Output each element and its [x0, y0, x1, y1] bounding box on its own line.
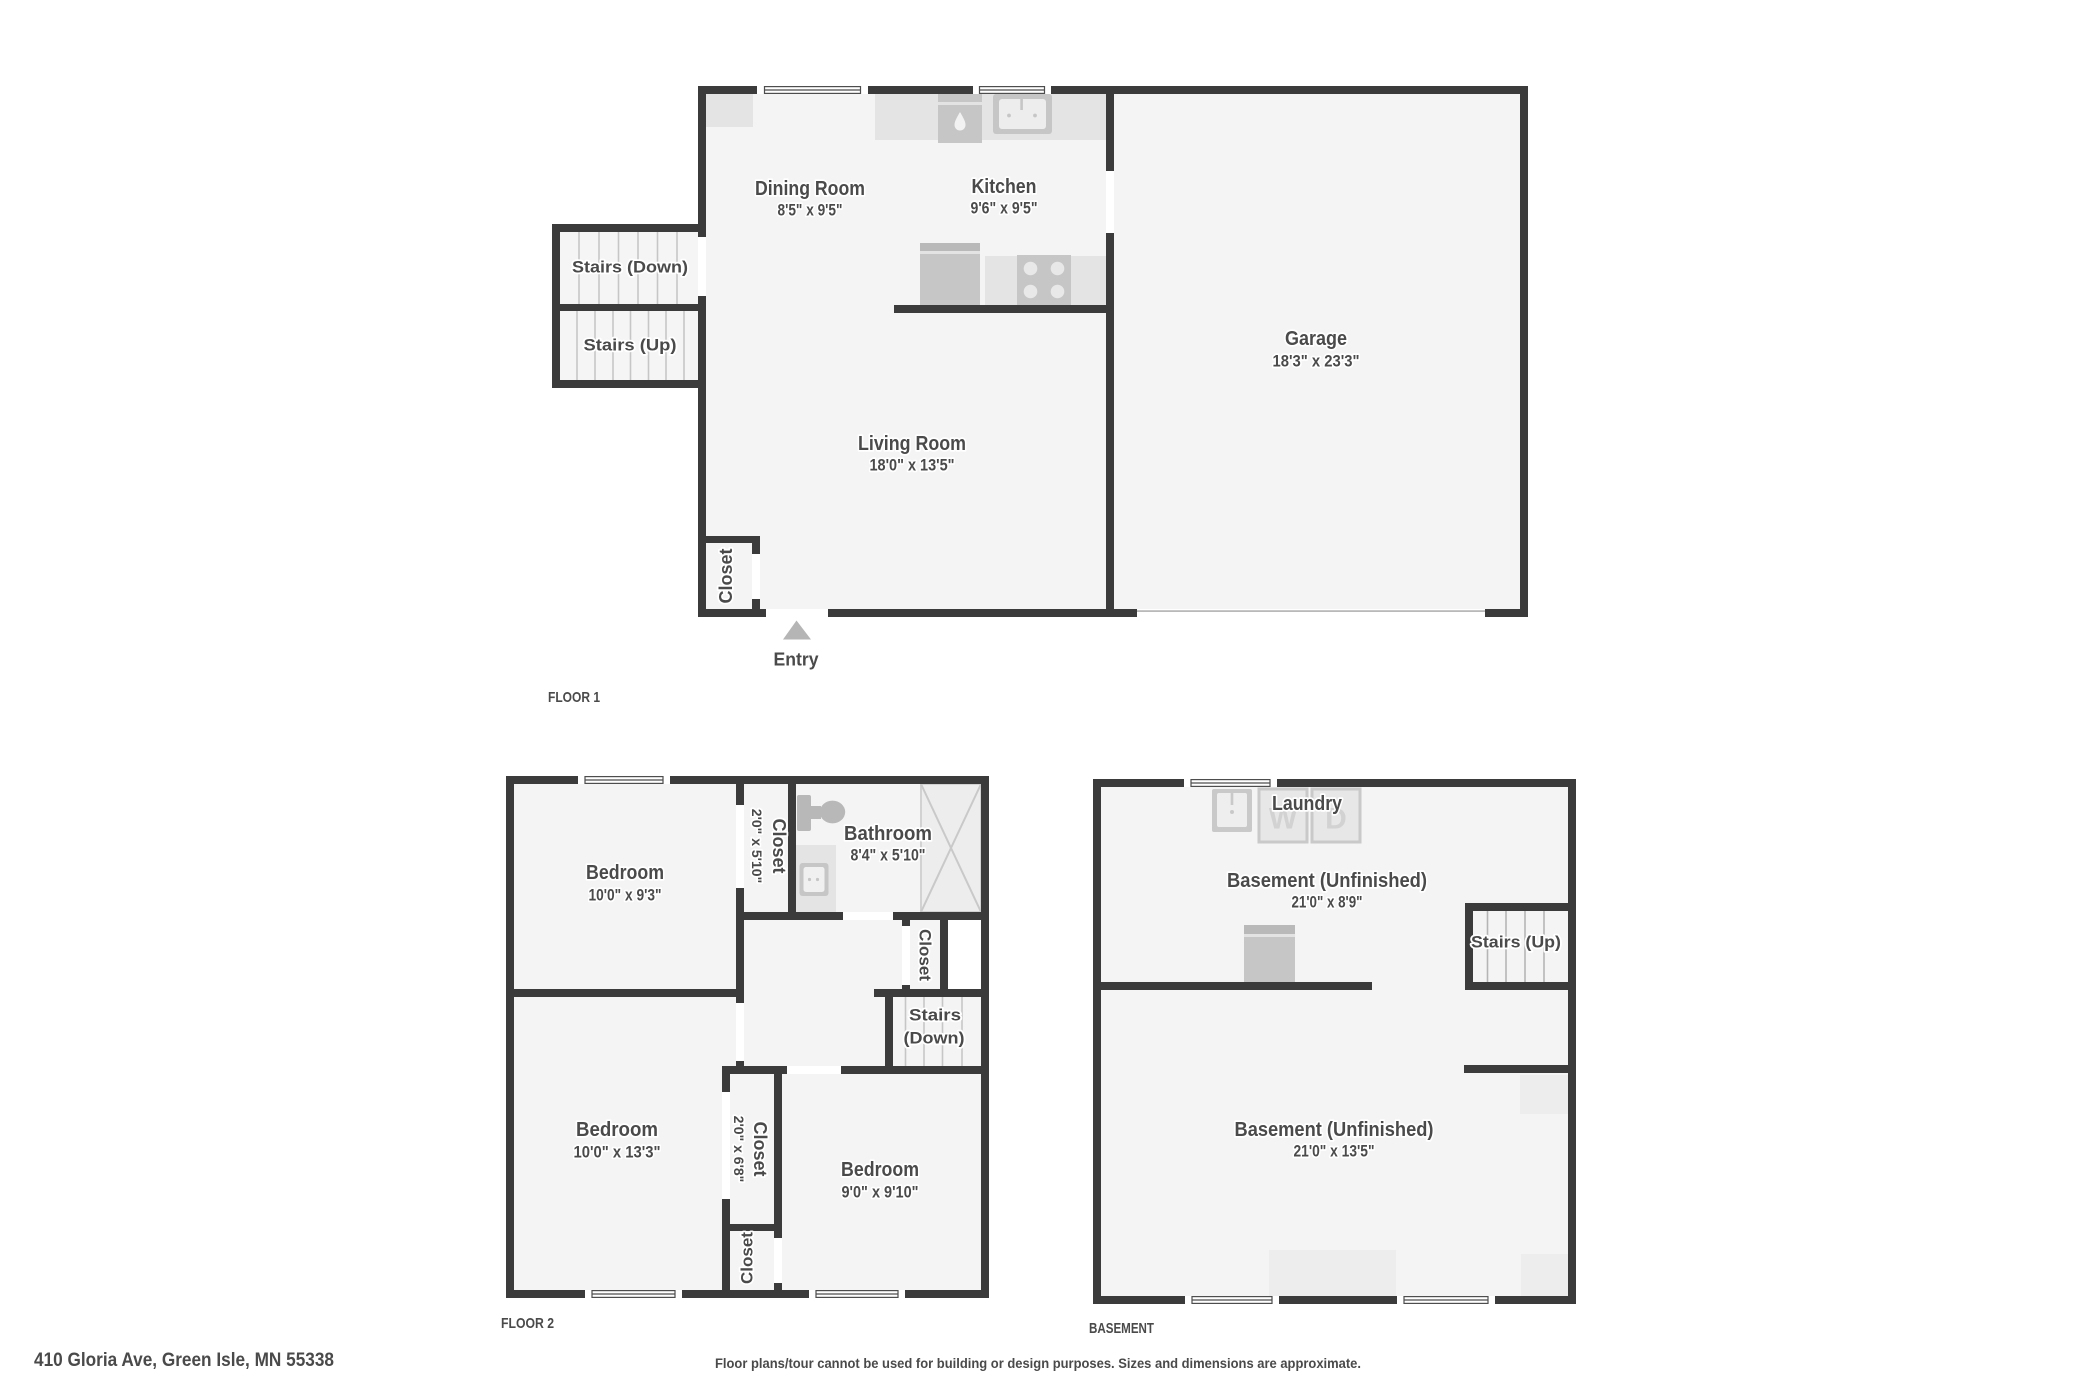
svg-text:Entry: Entry	[774, 649, 820, 670]
svg-text:9'0" x 9'10": 9'0" x 9'10"	[842, 1183, 919, 1202]
svg-text:2'0" x 5'10": 2'0" x 5'10"	[749, 809, 765, 883]
svg-text:FLOOR 1: FLOOR 1	[548, 689, 600, 706]
svg-text:Bedroom: Bedroom	[576, 1119, 658, 1141]
svg-text:Stairs (Up): Stairs (Up)	[584, 336, 677, 355]
svg-text:Basement (Unfinished): Basement (Unfinished)	[1235, 1119, 1434, 1141]
svg-text:9'6" x 9'5": 9'6" x 9'5"	[971, 199, 1038, 218]
svg-text:Dining Room: Dining Room	[755, 178, 865, 200]
svg-text:Living Room: Living Room	[858, 433, 966, 455]
svg-text:BASEMENT: BASEMENT	[1089, 1320, 1154, 1337]
svg-text:Closet: Closet	[738, 1232, 757, 1284]
svg-text:(Down): (Down)	[904, 1029, 965, 1048]
svg-text:Bedroom: Bedroom	[841, 1159, 919, 1181]
svg-text:18'3" x 23'3": 18'3" x 23'3"	[1273, 352, 1360, 371]
svg-text:Laundry: Laundry	[1272, 793, 1343, 815]
svg-text:Bathroom: Bathroom	[844, 823, 932, 845]
svg-text:FLOOR 2: FLOOR 2	[501, 1315, 554, 1332]
svg-text:Stairs (Up): Stairs (Up)	[1471, 933, 1561, 952]
svg-text:21'0" x 8'9": 21'0" x 8'9"	[1292, 893, 1363, 912]
svg-text:8'5" x 9'5": 8'5" x 9'5"	[778, 201, 843, 220]
svg-text:Garage: Garage	[1285, 328, 1347, 350]
svg-text:Bedroom: Bedroom	[586, 862, 664, 884]
svg-text:8'4" x 5'10": 8'4" x 5'10"	[851, 846, 926, 865]
svg-text:Kitchen: Kitchen	[972, 176, 1037, 198]
svg-text:2'0" x 6'8": 2'0" x 6'8"	[731, 1116, 747, 1183]
svg-text:Closet: Closet	[750, 1121, 770, 1176]
svg-text:Basement (Unfinished): Basement (Unfinished)	[1227, 870, 1427, 892]
svg-text:18'0" x 13'5": 18'0" x 13'5"	[870, 456, 955, 475]
svg-text:Stairs (Down): Stairs (Down)	[572, 258, 688, 277]
svg-text:10'0" x 13'3": 10'0" x 13'3"	[574, 1143, 661, 1162]
svg-text:Closet: Closet	[769, 818, 789, 873]
svg-text:Stairs: Stairs	[909, 1006, 961, 1025]
svg-text:Closet: Closet	[916, 929, 935, 981]
svg-text:Closet: Closet	[716, 548, 736, 603]
svg-text:410 Gloria Ave, Green Isle, MN: 410 Gloria Ave, Green Isle, MN 55338	[34, 1350, 334, 1371]
svg-text:21'0" x 13'5": 21'0" x 13'5"	[1294, 1142, 1375, 1161]
svg-text:Floor plans/tour cannot be use: Floor plans/tour cannot be used for buil…	[715, 1355, 1361, 1371]
svg-text:10'0" x 9'3": 10'0" x 9'3"	[589, 886, 662, 905]
